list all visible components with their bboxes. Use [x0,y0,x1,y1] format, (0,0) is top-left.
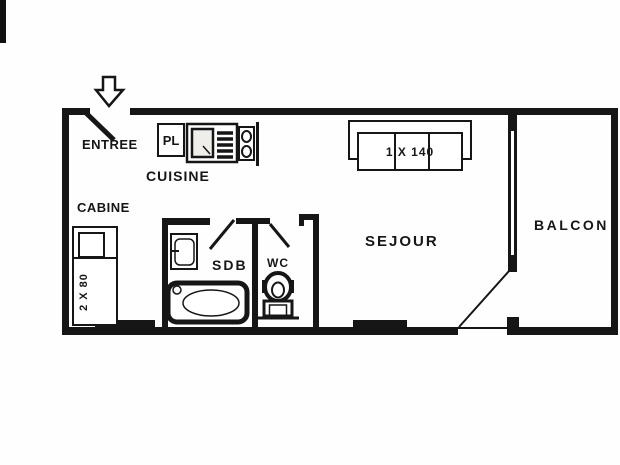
sofa-bed-seat: 1 X 140 [357,132,463,171]
floor-plan: PL 1 X 140 2 X 80 ENTREE CUISINE CABINE … [0,0,620,465]
washbasin-icon [171,234,197,269]
sdb-door-swing [210,220,234,249]
bunk-bed-label: 2 X 80 [78,262,94,322]
kitchen-unit-icon [187,124,237,162]
room-label-balcon: BALCON [534,217,609,233]
toilet-icon [257,273,299,318]
bathtub-icon [168,283,247,322]
hob-icon [239,127,254,160]
room-label-entree: ENTREE [82,137,138,152]
room-label-cabine: CABINE [77,200,130,215]
balcony-door-swing [459,271,509,327]
room-label-sdb: SDB [212,257,248,273]
room-label-wc: WC [267,256,289,270]
sofa-bed-label: 1 X 140 [386,145,434,159]
room-label-sejour: SEJOUR [365,233,439,250]
wc-door-swing [270,224,289,247]
closet-pl: PL [157,123,185,157]
closet-label: PL [163,133,180,148]
entrance-door-swing [85,112,114,140]
bunk-bed-pillow [78,232,105,258]
bunk-bed-divider [72,257,118,259]
entrance-arrow-icon [96,77,123,106]
room-label-cuisine: CUISINE [146,168,210,184]
